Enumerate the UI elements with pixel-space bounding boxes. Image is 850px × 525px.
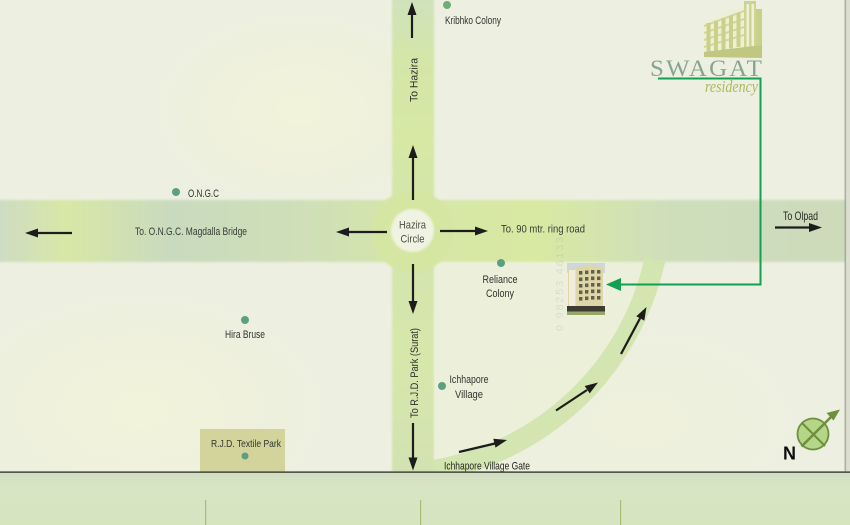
svg-text:R.J.D. Textile Park: R.J.D. Textile Park [211, 438, 282, 450]
svg-text:Circle: Circle [401, 234, 425, 246]
svg-text:To R.J.D. Park (Surat): To R.J.D. Park (Surat) [409, 328, 421, 418]
svg-text:Ichhapore Village Gate: Ichhapore Village Gate [444, 461, 530, 473]
svg-text:Hazira: Hazira [399, 220, 427, 232]
svg-text:To Hazira: To Hazira [409, 57, 421, 102]
svg-text:To. O.N.G.C. Magdalla Bridge: To. O.N.G.C. Magdalla Bridge [135, 226, 247, 238]
svg-text:Village: Village [455, 389, 483, 401]
svg-text:N: N [783, 444, 796, 464]
svg-text:To Olpad: To Olpad [783, 209, 818, 223]
svg-text:residency: residency [705, 77, 759, 96]
svg-text:To. 90 mtr. ring road: To. 90 mtr. ring road [501, 224, 585, 236]
svg-text:Colony: Colony [486, 288, 514, 300]
svg-text:O.N.G.C: O.N.G.C [188, 188, 219, 200]
svg-text:Hira Bruse: Hira Bruse [225, 329, 265, 341]
svg-text:Reliance: Reliance [483, 274, 518, 286]
svg-text:Kribhko Colony: Kribhko Colony [445, 15, 501, 27]
svg-text:0 98253 46133: 0 98253 46133 [554, 235, 566, 331]
svg-text:Ichhapore: Ichhapore [450, 374, 489, 386]
